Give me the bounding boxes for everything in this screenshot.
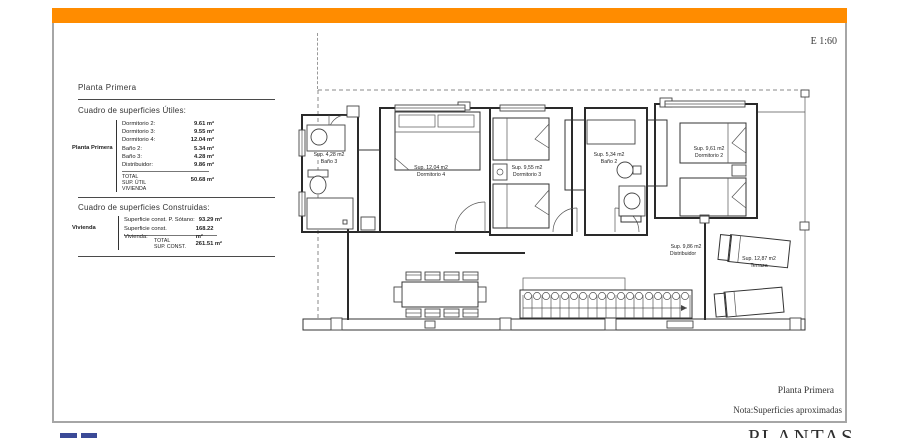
footer-note: Nota:Superficies aproximadas: [640, 405, 842, 415]
room-label-distribuidor: Sup. 9,86 m2: [671, 244, 702, 250]
table-group-label: Vivienda: [72, 216, 118, 250]
table-row: Superficie const. Vivienda:168.22 m²: [124, 225, 222, 234]
sheet-big-title: PLANTAS: [748, 425, 855, 438]
chair-icons: [406, 272, 478, 317]
table-group-label: Planta Primera: [72, 120, 116, 192]
table-row: Baño 2:5.34 m²: [122, 145, 214, 153]
built-areas-title: Cuadro de superficies Construidas:: [78, 203, 210, 212]
room-label-dorm4: Sup. 12,04 m2: [414, 165, 448, 171]
svg-text:Dormitorio 2: Dormitorio 2: [695, 153, 723, 159]
divider: [78, 197, 275, 198]
walls: [302, 98, 757, 320]
bottom-wall: [303, 318, 805, 330]
room-label-bano2: Sup. 5,34 m2: [594, 152, 625, 158]
room-label-bano3: Sup. 4,28 m2: [314, 152, 345, 158]
dashed-boundary: [318, 90, 805, 319]
drawing-sheet: E 1:60 Planta Primera Cuadro de superfic…: [0, 0, 919, 438]
dining-table: [394, 272, 486, 317]
staircase: [520, 278, 692, 318]
table-row: Distribuidor:9.86 m²: [122, 161, 214, 169]
room-label-terraza: Sup. 12,87 m2: [742, 256, 776, 262]
useful-areas-table: Planta Primera Dormitorio 2:9.61 m² Dorm…: [72, 120, 214, 192]
room-labels: Sup. 4,28 m2 Baño 3 Sup. 12,04 m2 Dormit…: [314, 146, 776, 269]
total-divider: [122, 171, 209, 172]
sink-icon: [311, 129, 327, 145]
footer-plan-name: Planta Primera: [698, 386, 834, 396]
sun-lounger-icon: [714, 287, 784, 318]
table-row: Dormitorio 4:12.04 m²: [122, 136, 214, 144]
stairwell-strip: [358, 150, 380, 232]
svg-text:Baño 2: Baño 2: [601, 159, 618, 165]
orange-header-bar: [52, 8, 847, 23]
page-title: Planta Primera: [78, 83, 137, 92]
table-row: Baño 3:4.28 m²: [122, 153, 214, 161]
table-row: Dormitorio 2:9.61 m²: [122, 120, 214, 128]
svg-text:Dormitorio 4: Dormitorio 4: [417, 172, 445, 178]
table-row: Dormitorio 3:9.55 m²: [122, 128, 214, 136]
svg-text:Distribuidor: Distribuidor: [670, 251, 697, 257]
divider: [78, 256, 275, 257]
terrace-railing: [757, 90, 809, 320]
divider: [78, 99, 275, 100]
built-areas-table: Vivienda Superficie const. P. Sótano:93.…: [72, 216, 224, 250]
total-row: TOTAL SUP. ÚTIL VIVIENDA 50.68 m²: [122, 174, 214, 192]
svg-text:Dormitorio 3: Dormitorio 3: [513, 172, 541, 178]
svg-text:Baño 3: Baño 3: [321, 159, 338, 165]
dashed-reference-line: [317, 33, 318, 89]
room-label-dorm3: Sup. 9,55 m2: [512, 165, 543, 171]
floor-plan: Sup. 4,28 m2 Baño 3 Sup. 12,04 m2 Dormit…: [295, 82, 810, 334]
scale-label: E 1:60: [755, 36, 837, 47]
stair-direction-arrow: [681, 305, 687, 311]
logo-fragment: [60, 433, 77, 438]
svg-text:Terraza: Terraza: [750, 263, 767, 269]
step-number-circles: [524, 292, 688, 299]
sink-icon: [617, 162, 633, 178]
room-label-dorm2: Sup. 9,61 m2: [694, 146, 725, 152]
logo-fragment: [81, 433, 97, 438]
table-row: Superficie const. P. Sótano:93.29 m²: [124, 216, 222, 225]
useful-areas-title: Cuadro de superficies Útiles:: [78, 106, 186, 115]
